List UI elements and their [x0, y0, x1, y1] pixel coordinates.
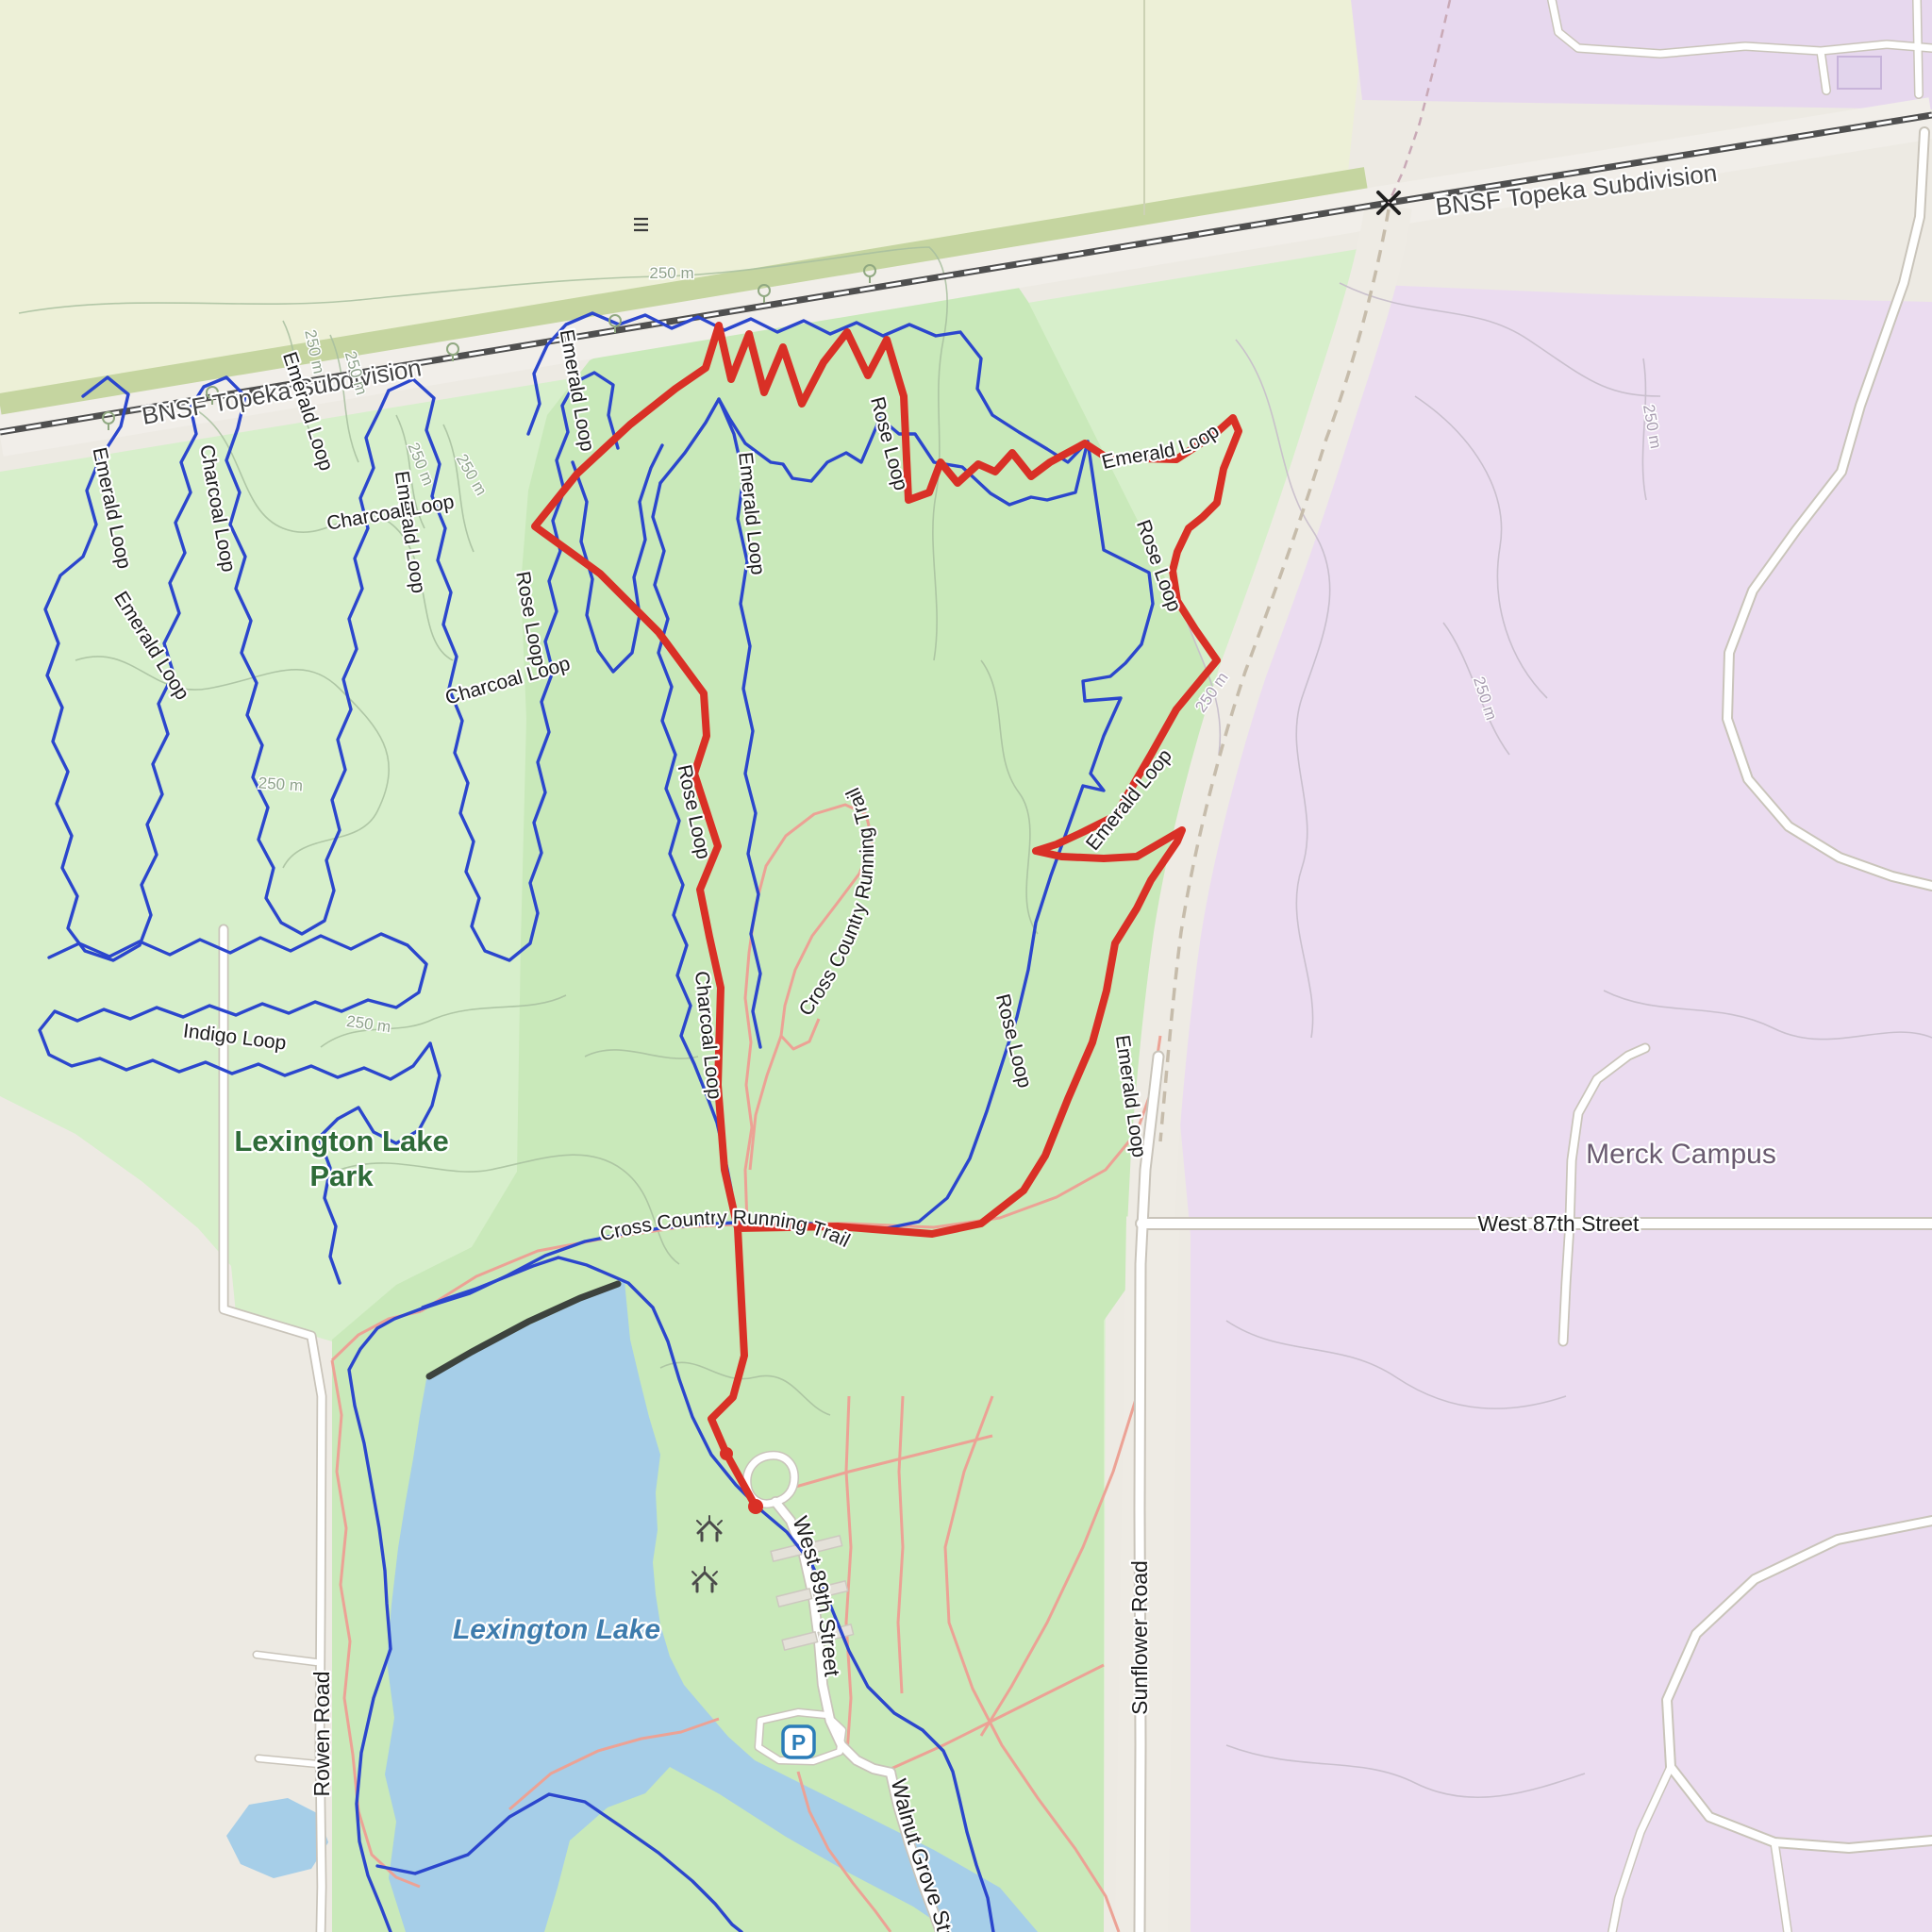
road-label-rowen: Rowen Road	[309, 1672, 334, 1797]
gps-end-dot	[748, 1499, 763, 1514]
building	[1838, 57, 1881, 89]
contour-label-1: 250 m	[649, 264, 693, 282]
park-name-line2: Park	[309, 1159, 374, 1192]
gps-waypoint-dot	[720, 1447, 733, 1460]
road-label-west87: West 87th Street	[1478, 1211, 1640, 1236]
parking-icon: P	[783, 1726, 814, 1757]
road-label-sunflower: Sunflower Road	[1127, 1560, 1152, 1715]
park-name-line1: Lexington Lake	[234, 1124, 448, 1158]
lake-label: Lexington Lake	[453, 1614, 660, 1645]
trail-map[interactable]: P BNSF Topeka Subdivision BNSF Topeka Su…	[0, 0, 1932, 1932]
contour-label-6: 250 m	[258, 774, 303, 794]
parking-symbol: P	[791, 1730, 806, 1755]
campus-label: Merck Campus	[1586, 1139, 1776, 1170]
